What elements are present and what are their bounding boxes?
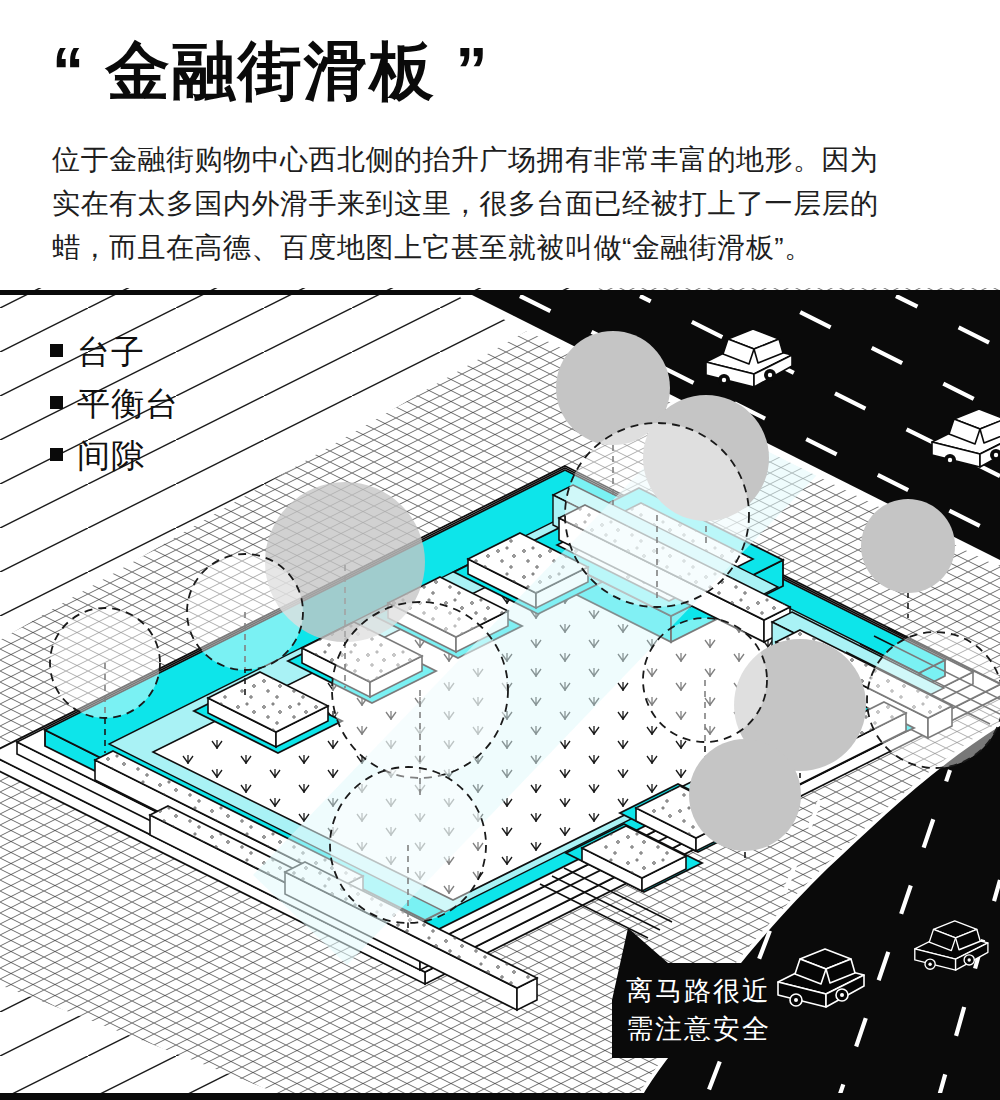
- warning-line2: 需注意安全: [626, 1010, 796, 1048]
- top-border: [0, 290, 1000, 295]
- tree-canopy-icon: [187, 554, 303, 670]
- tree-canopy-icon: [330, 767, 486, 923]
- square-bullet-icon: [50, 344, 63, 357]
- list-item: 间隙: [50, 436, 179, 488]
- feature-label: 台子: [77, 332, 145, 372]
- feature-list: 台子 平衡台 间隙: [50, 332, 179, 488]
- square-bullet-icon: [50, 396, 63, 409]
- page: “ 金融街滑板 ” 位于金融街购物中心西北侧的抬升广场拥有非常丰富的地形。因为 …: [0, 0, 1000, 1100]
- feature-label: 间隙: [77, 436, 145, 476]
- plaza-illustration: 台子 平衡台 间隙 离马路很近 需注意安全: [0, 288, 1000, 1100]
- warning-line1: 离马路很近: [626, 972, 796, 1010]
- tree-canopy-icon: [643, 618, 767, 742]
- tree-canopy-icon: [50, 608, 160, 718]
- tree-canopy-icon: [689, 739, 801, 851]
- tree-canopy-icon: [861, 499, 955, 593]
- bottom-border: [0, 1093, 1000, 1100]
- square-bullet-icon: [50, 448, 63, 461]
- page-title: “ 金融街滑板 ”: [52, 36, 972, 106]
- list-item: 平衡台: [50, 384, 179, 436]
- feature-label: 平衡台: [77, 384, 179, 424]
- intro-paragraph: 位于金融街购物中心西北侧的抬升广场拥有非常丰富的地形。因为 实在有太多国内外滑手…: [52, 138, 962, 271]
- warning-caption: 离马路很近 需注意安全: [626, 972, 796, 1048]
- tree-canopy-icon: [867, 632, 1000, 768]
- tree-canopy-icon: [332, 602, 508, 778]
- tree-canopy-icon: [565, 423, 749, 607]
- header: “ 金融街滑板 ” 位于金融街购物中心西北侧的抬升广场拥有非常丰富的地形。因为 …: [0, 0, 1000, 288]
- list-item: 台子: [50, 332, 179, 384]
